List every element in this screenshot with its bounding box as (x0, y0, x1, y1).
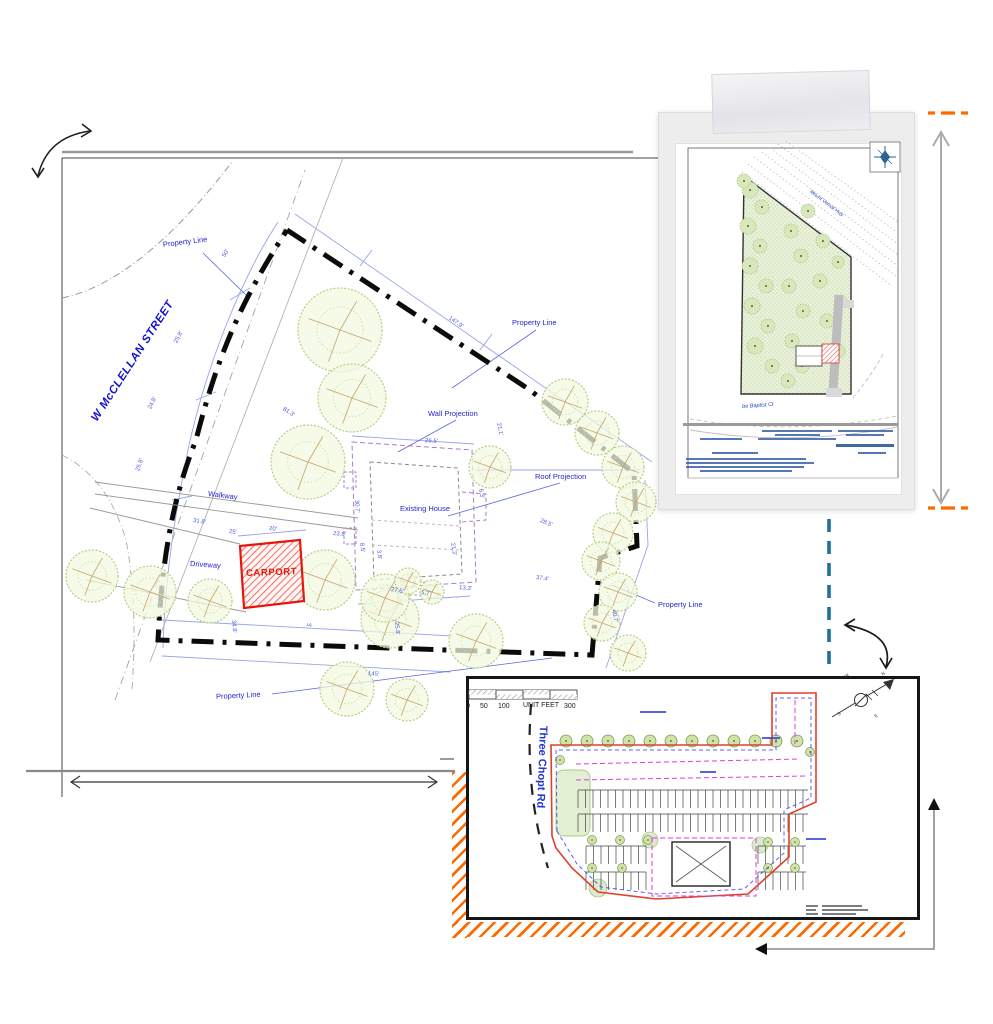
building-footprint (672, 842, 730, 886)
dimension-label: 25' (229, 529, 238, 536)
scale-bar (469, 690, 577, 699)
text-line-bar (838, 430, 893, 432)
vertical-double-arrow (933, 132, 949, 503)
orange-hatch-strip-vertical (452, 772, 467, 938)
text-line-bar (700, 470, 792, 472)
text-line-bar (806, 909, 816, 911)
text-line-bar (775, 434, 820, 436)
text-line-bar (806, 838, 826, 840)
tree (556, 756, 565, 765)
tree (644, 836, 653, 845)
dimension-label: 3' (305, 623, 311, 628)
text-line-bar (846, 434, 884, 436)
text-line-bar (686, 466, 804, 468)
parking-stalls-row (578, 790, 808, 808)
scale-unit-label: UNIT FEET (523, 702, 559, 709)
text-line-bar (762, 430, 832, 432)
text-line-bar (822, 905, 862, 907)
tree (616, 836, 625, 845)
scale-max-label: 300 (564, 703, 576, 710)
dimension-label: 26.5' (425, 438, 438, 445)
tree (764, 838, 773, 847)
text-line-bar (836, 444, 894, 447)
tree (791, 864, 800, 873)
driveway-label: Driveway (190, 560, 221, 570)
dimension-label: 30.7' (353, 500, 360, 513)
dimension-label: 13.3' (459, 585, 472, 592)
carport-label: CARPORT (246, 567, 297, 578)
tree (588, 836, 597, 845)
text-line-bar (686, 458, 806, 460)
scale-tick-label: 100 (498, 703, 510, 710)
property-line-label: Property Line (512, 319, 557, 327)
dimension-label: 8.5' (358, 543, 365, 553)
text-line-bar (686, 462, 814, 464)
dimension-label: 3.8' (375, 550, 382, 560)
text-line-bar (762, 737, 780, 739)
text-line-bar (758, 438, 836, 440)
dimension-label: 20' (269, 526, 277, 533)
text-line-bar (806, 913, 818, 915)
text-line-bar (712, 452, 758, 454)
text-line-bar (700, 771, 716, 773)
parking-stalls-row (578, 814, 808, 832)
roof-projection-label: Roof Projection (535, 473, 586, 481)
text-line-bar (822, 913, 856, 915)
dimension-label: 145' (368, 671, 380, 678)
orange-hatch-strip-horizontal (455, 922, 905, 937)
site-plan-collage: W McCLELLAN STREET Property Line Propert… (0, 0, 993, 1024)
existing-house-label: Existing House (400, 505, 450, 513)
text-line-bar (858, 452, 886, 454)
tree (791, 838, 800, 847)
text-line-bar (440, 758, 454, 760)
dimension-label: 25.8' (393, 622, 400, 635)
text-line-bar (822, 909, 868, 911)
parking-stalls-row (758, 872, 806, 890)
tree (618, 864, 627, 873)
text-line-bar (806, 905, 818, 907)
scale-tick-label: 50 (480, 703, 488, 710)
wall-projection-label: Wall Projection (428, 410, 478, 418)
text-line-bar (640, 711, 666, 713)
property-line-label: Property Line (658, 601, 703, 609)
tree (791, 735, 803, 747)
dimension-label: 23.8' (333, 531, 346, 538)
tree (588, 864, 597, 873)
tree (806, 748, 815, 757)
parking-stalls-row (586, 846, 646, 864)
tape-graphic (711, 70, 871, 134)
dimension-label: 34.8' (230, 620, 237, 633)
compass-rose (832, 679, 894, 717)
green-islands (556, 770, 768, 897)
scale-tick-label: 0 (466, 703, 470, 710)
curved-arrow-middle (845, 619, 892, 668)
text-line-bar (700, 438, 742, 440)
